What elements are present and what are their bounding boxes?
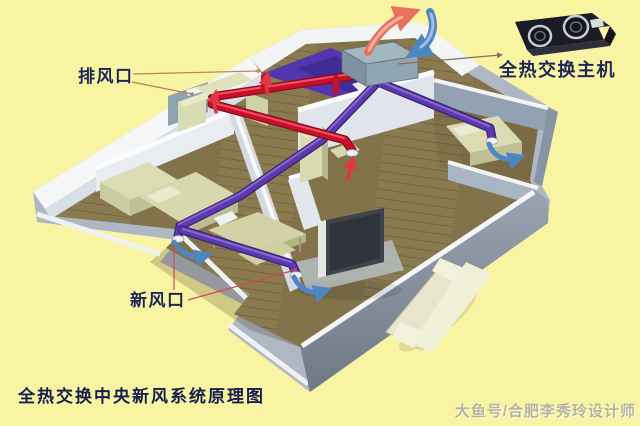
fan-port-icon: [564, 16, 588, 38]
tv-frame: [318, 220, 326, 278]
main-unit-label: 全热交换主机: [499, 61, 616, 79]
fan-port-icon: [529, 26, 551, 46]
diagram-canvas: 排风口 新风口 全热交换主机 全热交换中央新风系统原理图 大鱼号/合肥李秀玲设计…: [0, 0, 640, 426]
diagram-title: 全热交换中央新风系统原理图: [18, 388, 265, 405]
product-photo: [515, 13, 616, 56]
exhaust-air-arrow-icon: [266, 78, 268, 94]
fresh-air-vent-label: 新风口: [130, 292, 186, 309]
exhaust-grille: [346, 150, 358, 157]
exhaust-vent-label: 排风口: [78, 68, 134, 85]
exhaust-air-arrow-icon: [214, 96, 216, 112]
watermark: 大鱼号/合肥李秀玲设计师: [455, 400, 636, 421]
